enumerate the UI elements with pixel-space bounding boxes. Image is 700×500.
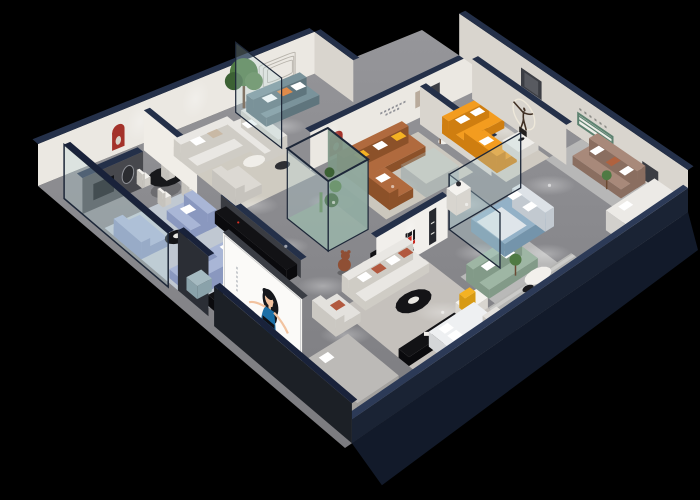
- teddy-bear-ear: [341, 250, 344, 253]
- showroom-scene-canvas: 华悦: [0, 0, 700, 500]
- dining-chair-3-back-front: [163, 192, 166, 207]
- downlight-hotspot: [284, 245, 287, 248]
- dining-chair-1-back-front: [142, 173, 145, 188]
- downlight-hotspot: [465, 203, 468, 206]
- scene-root: 华悦: [33, 11, 699, 486]
- teddy-bear-ear: [347, 250, 350, 253]
- plant-foliage: [510, 254, 522, 266]
- teddy-bear-body: [338, 258, 351, 271]
- downlight-hotspot: [441, 311, 444, 314]
- brand-logo-mark: [413, 229, 415, 240]
- pedestal-sculpture: [456, 181, 461, 186]
- downlight-hotspot: [332, 201, 335, 204]
- terrarium-plant: [325, 167, 335, 177]
- downlight-hotspot: [391, 185, 394, 188]
- console-led: [237, 221, 239, 223]
- plant-foliage: [602, 170, 612, 180]
- showroom-floorplan-render: 华悦: [0, 0, 700, 500]
- downlight-hotspot: [548, 184, 551, 187]
- logo-wall-shelf-inset: [429, 208, 436, 246]
